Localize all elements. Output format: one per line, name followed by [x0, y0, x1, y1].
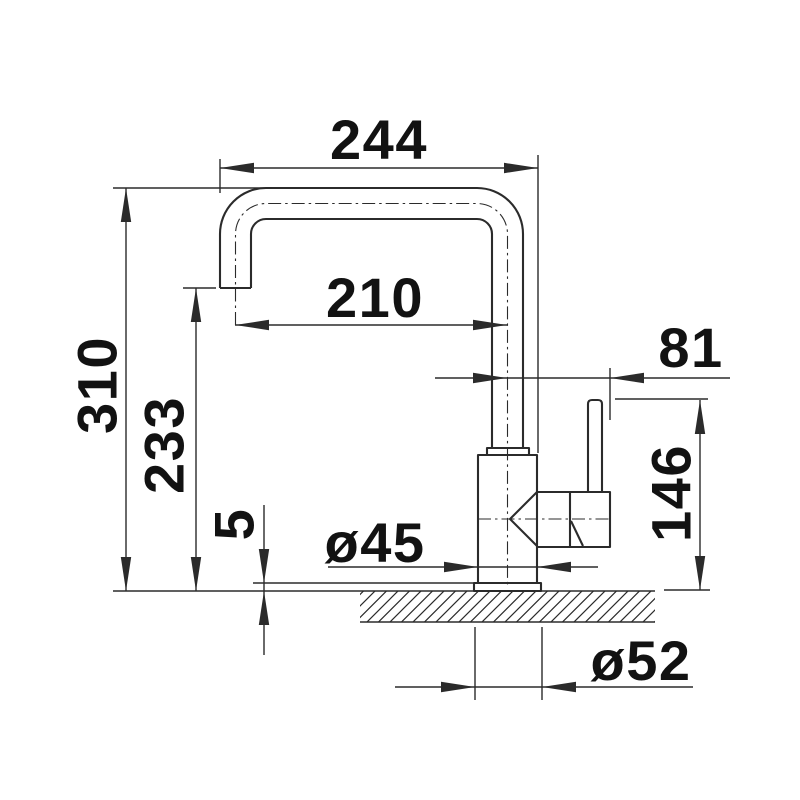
dimension-handle-offset: 81	[435, 316, 730, 420]
dimension-label-outlet-height: 233	[133, 396, 196, 494]
arrowhead-right	[473, 320, 507, 330]
dimension-label-total-height: 310	[66, 336, 129, 434]
valve-inner-edge	[571, 521, 583, 546]
arrowhead-left	[473, 373, 507, 383]
dimension-hole-diameter: ø52	[395, 627, 693, 700]
arrowhead-bottom	[121, 557, 131, 591]
arrowhead-lower	[259, 591, 269, 625]
arrowhead-top	[121, 188, 131, 222]
countertop-hatch	[360, 591, 655, 622]
arrowhead-left	[441, 682, 475, 692]
arrowhead-top	[695, 400, 705, 434]
handle-lever	[588, 400, 602, 492]
dimension-label-spout-reach: 244	[330, 108, 428, 171]
faucet-technical-drawing: 244 310 233 210 81 146	[0, 0, 800, 800]
dimension-label-hole-diameter: ø52	[591, 629, 692, 692]
dimension-handle-height: 146	[615, 399, 710, 590]
dimension-label-handle-height: 146	[640, 444, 703, 542]
arrowhead-right	[610, 373, 644, 383]
dimension-label-base-plate-height: 5	[203, 508, 266, 541]
dimension-label-handle-offset: 81	[658, 316, 723, 379]
arrowhead-right	[504, 163, 538, 173]
arrowhead-top	[191, 288, 201, 322]
dimension-label-spout-projection: 210	[326, 266, 424, 329]
arrowhead-upper	[259, 549, 269, 583]
dimension-label-body-diameter: ø45	[325, 511, 426, 574]
arrowhead-left	[444, 562, 478, 572]
arrowhead-left	[220, 163, 254, 173]
countertop	[113, 591, 655, 622]
arrowhead-bottom	[191, 557, 201, 591]
dimension-outlet-height: 233	[133, 288, 217, 591]
drawing-canvas: 244 310 233 210 81 146	[0, 0, 800, 800]
arrowhead-right	[542, 682, 576, 692]
dimension-body-diameter: ø45	[325, 511, 599, 574]
arrowhead-bottom	[695, 556, 705, 590]
arrowhead-right	[537, 562, 571, 572]
dimension-spout-projection: 210	[235, 266, 507, 330]
arrowhead-left	[235, 320, 269, 330]
spout-inner-contour	[251, 219, 492, 448]
